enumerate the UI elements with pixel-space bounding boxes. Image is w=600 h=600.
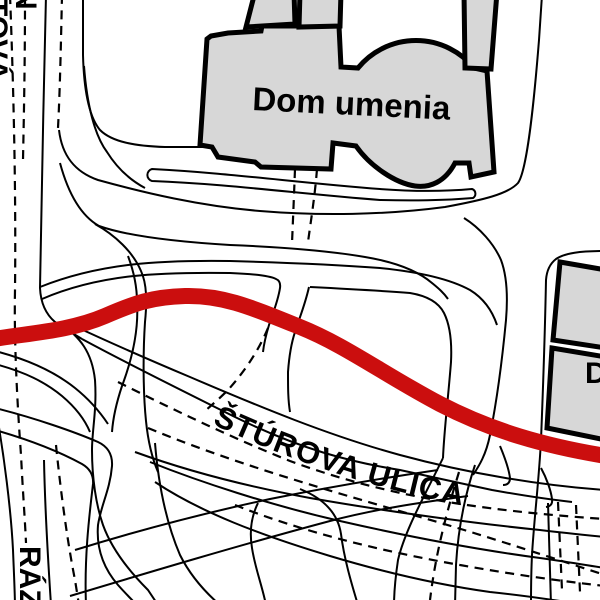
svg-text:D: D	[585, 357, 600, 390]
svg-text:N: N	[9, 0, 42, 10]
svg-text:TOVÁ: TOVÁ	[0, 0, 14, 81]
svg-text:RÁZUSOVO: RÁZUSOVO	[13, 546, 47, 600]
